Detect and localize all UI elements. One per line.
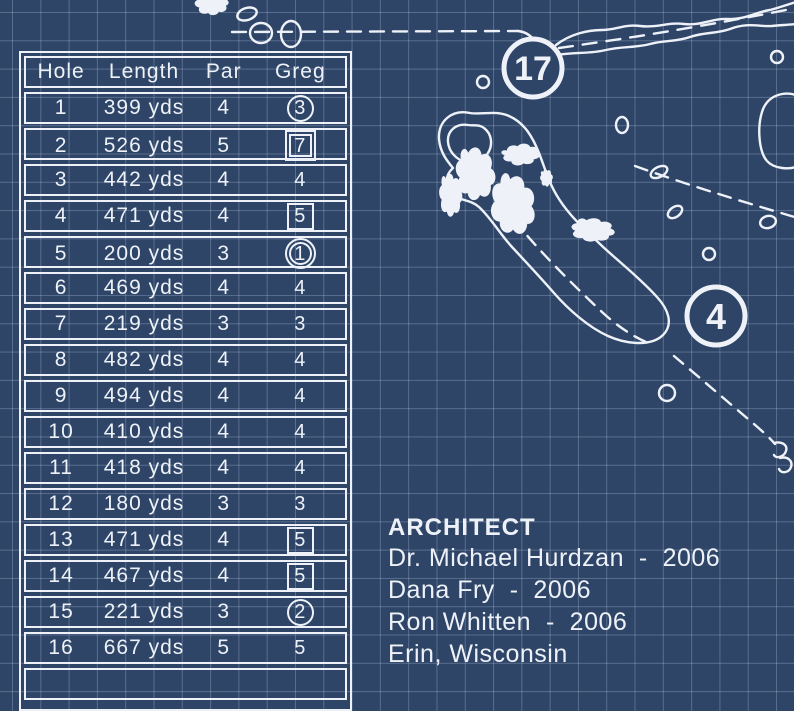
score-marker: 2 (287, 599, 314, 626)
hole-number-label: 4 (706, 296, 726, 337)
hole-par: 4 (192, 168, 256, 192)
architect-line: Ron Whitten - 2006 (388, 606, 720, 638)
score-marker: 5 (287, 203, 314, 230)
table-row: 14 467 yds 4 5 (24, 560, 347, 592)
architect-heading: ARCHITECT (388, 514, 720, 542)
fairway-outline (556, 2, 794, 45)
score-marker: 3 (290, 311, 310, 338)
table-row: 2 526 yds 5 7 (24, 128, 347, 160)
play-line-dashed (559, 8, 794, 48)
hole-par: 4 (192, 276, 256, 300)
table-row: 7 219 yds 3 3 (24, 308, 347, 340)
table-row: 3 442 yds 4 4 (24, 164, 347, 196)
hole-length: 180 yds (96, 492, 192, 516)
hole-par: 3 (192, 492, 256, 516)
column-header-greg: Greg (256, 60, 345, 84)
hole-4-marker: 4 (687, 287, 745, 345)
hole-number: 11 (26, 456, 96, 480)
hole-number: 9 (26, 384, 96, 408)
hole-par: 4 (192, 528, 256, 552)
hole-length: 399 yds (96, 96, 192, 120)
hole-par: 4 (192, 384, 256, 408)
bunker (565, 215, 621, 245)
score-marker: 3 (287, 95, 314, 122)
hole-number: 7 (26, 312, 96, 336)
table-row: 13 471 yds 4 5 (24, 524, 347, 556)
column-header-length: Length (96, 60, 192, 84)
table-row: 9 494 yds 4 4 (24, 380, 347, 412)
blueprint-poster: { "theme":{ "background":"#2e4568", "gri… (0, 0, 794, 671)
table-row: 1 399 yds 4 3 (24, 92, 347, 124)
architect-line: Dr. Michael Hurdzan - 2006 (388, 542, 720, 574)
table-row-partial (24, 668, 347, 700)
table-row: 15 221 yds 3 2 (24, 596, 347, 628)
table-row: 6 469 yds 4 4 (24, 272, 347, 304)
architect-line: Dana Fry - 2006 (388, 574, 720, 606)
score-marker: 7 (285, 130, 316, 161)
architect-line: Erin, Wisconsin (388, 638, 720, 670)
hole-number: 8 (26, 348, 96, 372)
architect-block: ARCHITECT Dr. Michael Hurdzan - 2006 Dan… (388, 514, 720, 670)
score-marker: 3 (290, 491, 310, 518)
hole-par: 4 (192, 204, 256, 228)
hole-17-marker: 17 (504, 39, 562, 97)
score-marker: 4 (290, 419, 310, 446)
hole-length: 482 yds (96, 348, 192, 372)
hole-par: 3 (192, 242, 256, 266)
tree-marker (703, 248, 715, 260)
hole-number: 2 (26, 134, 96, 158)
tree-marker (477, 76, 489, 88)
table-row: 5 200 yds 3 1 (24, 236, 347, 268)
hole-par: 3 (192, 312, 256, 336)
hole-length: 467 yds (96, 564, 192, 588)
bunker (497, 140, 546, 169)
tee-marker (281, 21, 301, 47)
hole-number: 10 (26, 420, 96, 444)
tree-marker (771, 51, 783, 63)
hole-par: 3 (192, 600, 256, 624)
score-marker: 4 (290, 347, 310, 374)
hole-length: 526 yds (96, 134, 192, 158)
hole-length: 442 yds (96, 168, 192, 192)
scorecard-table: Hole Length Par Greg 1 399 yds 4 3 2 526… (19, 51, 352, 711)
score-marker: 5 (290, 635, 310, 662)
hole-number: 15 (26, 600, 96, 624)
play-line-dashed (635, 166, 794, 218)
score-marker: 1 (285, 238, 316, 269)
hole-par: 4 (192, 96, 256, 120)
hole-number: 1 (26, 96, 96, 120)
hole-length: 410 yds (96, 420, 192, 444)
hole-length: 418 yds (96, 456, 192, 480)
hole-length: 219 yds (96, 312, 192, 336)
score-marker: 4 (290, 167, 310, 194)
tree-marker (666, 203, 685, 220)
green-outline (439, 112, 669, 343)
hole-par: 4 (192, 564, 256, 588)
hole-number: 14 (26, 564, 96, 588)
column-header-par: Par (192, 60, 256, 84)
fairway-outline (557, 24, 794, 55)
hole-length: 471 yds (96, 528, 192, 552)
hole-number: 13 (26, 528, 96, 552)
green-outline (759, 94, 794, 169)
hole-length: 494 yds (96, 384, 192, 408)
hole-par: 4 (192, 348, 256, 372)
table-row: 12 180 yds 3 3 (24, 488, 347, 520)
table-row: 16 667 yds 5 5 (24, 632, 347, 664)
score-marker: 5 (287, 527, 314, 554)
table-header-row: Hole Length Par Greg (24, 56, 347, 88)
rough-squiggle (779, 458, 791, 473)
bunker (195, 0, 229, 15)
score-marker: 4 (290, 383, 310, 410)
hole-par: 5 (192, 636, 256, 660)
tree-marker (759, 214, 778, 230)
hole-length: 200 yds (96, 242, 192, 266)
table-row: 8 482 yds 4 4 (24, 344, 347, 376)
hole-length: 221 yds (96, 600, 192, 624)
hole-number: 5 (26, 242, 96, 266)
hole-number: 3 (26, 168, 96, 192)
play-line-dashed (514, 220, 646, 342)
hole-number: 4 (26, 204, 96, 228)
tee-line-dashed (232, 31, 518, 32)
hole-number: 16 (26, 636, 96, 660)
score-marker: 4 (290, 275, 310, 302)
hole-length: 471 yds (96, 204, 192, 228)
column-header-hole: Hole (26, 60, 96, 84)
tree-marker (659, 385, 675, 401)
score-marker: 4 (290, 455, 310, 482)
hole-par: 4 (192, 456, 256, 480)
hole-par: 5 (192, 134, 256, 158)
score-marker: 5 (287, 563, 314, 590)
play-line-dashed (674, 356, 775, 444)
hole-number: 12 (26, 492, 96, 516)
hole-number-label: 17 (514, 50, 552, 88)
tee-marker (236, 5, 259, 23)
table-row: 10 410 yds 4 4 (24, 416, 347, 448)
hole-number: 6 (26, 276, 96, 300)
tree-marker (616, 117, 628, 133)
table-row: 11 418 yds 4 4 (24, 452, 347, 484)
hole-length: 469 yds (96, 276, 192, 300)
table-row: 4 471 yds 4 5 (24, 200, 347, 232)
hole-length: 667 yds (96, 636, 192, 660)
hole-par: 4 (192, 420, 256, 444)
